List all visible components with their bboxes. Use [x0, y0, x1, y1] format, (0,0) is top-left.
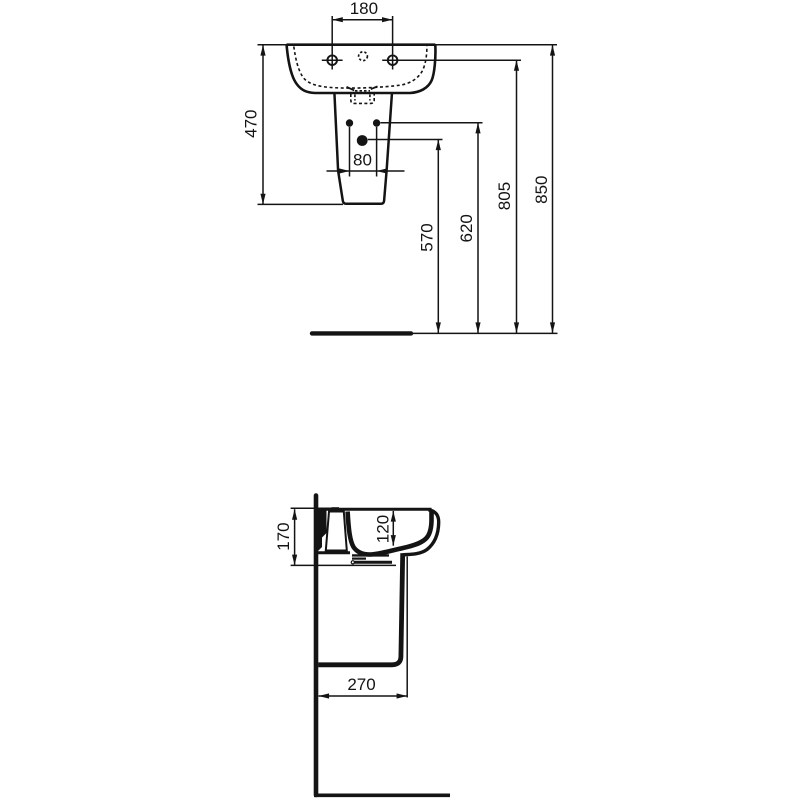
svg-text:120: 120 [374, 515, 393, 543]
svg-text:170: 170 [274, 522, 293, 550]
svg-text:80: 80 [353, 151, 372, 170]
svg-text:805: 805 [495, 182, 514, 210]
svg-text:620: 620 [457, 214, 476, 242]
svg-text:470: 470 [241, 110, 260, 138]
svg-text:850: 850 [532, 176, 551, 204]
svg-text:570: 570 [417, 223, 436, 251]
svg-text:270: 270 [347, 675, 375, 694]
svg-text:180: 180 [350, 0, 378, 18]
